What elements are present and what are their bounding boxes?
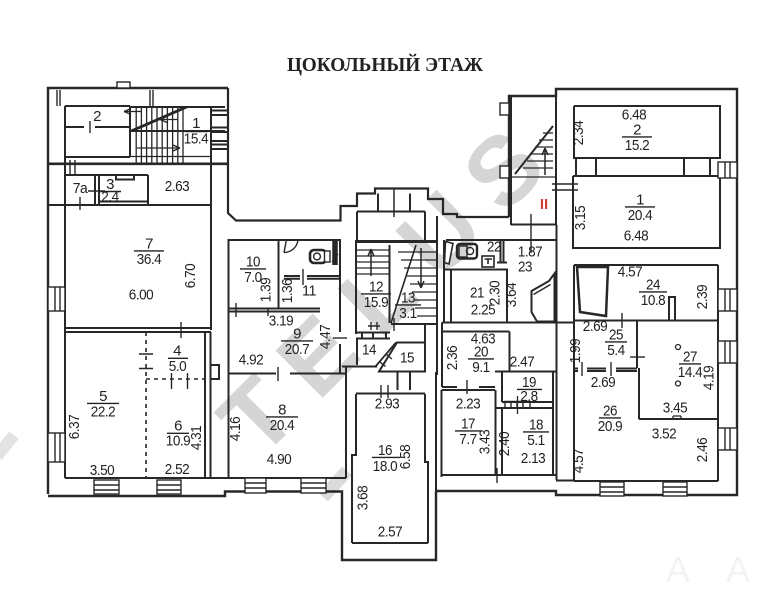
svg-text:4.57: 4.57 — [571, 448, 587, 473]
svg-text:20.9: 20.9 — [598, 418, 623, 435]
svg-text:6.37: 6.37 — [67, 414, 83, 439]
svg-text:14: 14 — [362, 342, 376, 359]
svg-text:2.40: 2.40 — [497, 431, 513, 456]
svg-text:16: 16 — [378, 442, 392, 459]
svg-text:А: А — [666, 549, 690, 590]
svg-text:21: 21 — [470, 285, 484, 302]
svg-text:6.70: 6.70 — [183, 263, 199, 288]
svg-text:22.2: 22.2 — [91, 403, 116, 420]
svg-text:2.34: 2.34 — [571, 120, 587, 145]
svg-text:4.16: 4.16 — [228, 416, 244, 441]
svg-text:2.93: 2.93 — [375, 397, 400, 413]
svg-text:23: 23 — [518, 259, 532, 276]
svg-text:2.69: 2.69 — [583, 319, 608, 335]
svg-text:4.90: 4.90 — [267, 452, 292, 468]
svg-text:1.39: 1.39 — [259, 277, 275, 302]
svg-text:ЦОКОЛЬНЫЙ ЭТАЖ: ЦОКОЛЬНЫЙ ЭТАЖ — [287, 53, 484, 76]
svg-text:2: 2 — [93, 108, 101, 125]
svg-text:3.1: 3.1 — [399, 305, 417, 322]
svg-text:А: А — [726, 549, 750, 590]
svg-text:6.00: 6.00 — [129, 288, 154, 304]
svg-text:4.31: 4.31 — [189, 425, 205, 450]
svg-text:11: 11 — [302, 283, 316, 300]
svg-text:2.46: 2.46 — [695, 437, 711, 462]
svg-text:36.4: 36.4 — [137, 251, 162, 268]
svg-text:2.39: 2.39 — [695, 284, 711, 309]
svg-text:2.13: 2.13 — [521, 451, 546, 467]
svg-text:2.52: 2.52 — [165, 462, 190, 478]
svg-text:15: 15 — [400, 350, 414, 367]
svg-text:22: 22 — [487, 239, 501, 256]
svg-text:3.43: 3.43 — [478, 429, 494, 454]
svg-text:7а: 7а — [73, 180, 89, 197]
svg-text:3.19: 3.19 — [269, 314, 294, 330]
svg-text:3.64: 3.64 — [504, 282, 520, 307]
svg-text:5.4: 5.4 — [607, 342, 625, 359]
svg-text:18.0: 18.0 — [373, 458, 398, 475]
svg-text:6.48: 6.48 — [624, 229, 649, 245]
svg-text:1.36: 1.36 — [280, 278, 296, 303]
svg-text:4.57: 4.57 — [618, 265, 643, 281]
svg-text:4.47: 4.47 — [318, 324, 334, 349]
svg-text:3.50: 3.50 — [90, 463, 115, 479]
svg-text:15.2: 15.2 — [625, 137, 650, 154]
svg-text:2.25: 2.25 — [471, 303, 496, 319]
svg-text:1.99: 1.99 — [568, 338, 584, 363]
svg-text:2.23: 2.23 — [456, 397, 481, 413]
svg-text:20.7: 20.7 — [285, 341, 310, 358]
svg-text:20.4: 20.4 — [270, 417, 295, 434]
svg-text:4.92: 4.92 — [239, 353, 264, 369]
svg-text:2.57: 2.57 — [378, 525, 403, 541]
svg-text:9.1: 9.1 — [472, 359, 490, 376]
svg-text:6.58: 6.58 — [398, 444, 414, 469]
svg-text:II: II — [540, 196, 548, 213]
svg-text:2.4: 2.4 — [101, 189, 119, 206]
svg-text:5.0: 5.0 — [169, 358, 187, 375]
svg-text:2.69: 2.69 — [591, 375, 616, 391]
svg-text:14.4: 14.4 — [678, 364, 703, 381]
svg-text:10.9: 10.9 — [166, 432, 191, 449]
svg-text:2.36: 2.36 — [445, 345, 461, 370]
svg-text:7.7: 7.7 — [459, 431, 477, 448]
svg-text:3.15: 3.15 — [573, 205, 589, 230]
svg-text:3.68: 3.68 — [356, 485, 372, 510]
svg-text:4.63: 4.63 — [471, 332, 496, 348]
svg-text:3.52: 3.52 — [652, 427, 677, 443]
svg-text:4.19: 4.19 — [702, 365, 718, 390]
svg-text:2.47: 2.47 — [510, 355, 535, 371]
svg-text:15.9: 15.9 — [364, 294, 389, 311]
svg-text:2.8: 2.8 — [520, 388, 538, 405]
svg-text:2.63: 2.63 — [165, 179, 190, 195]
svg-text:20.4: 20.4 — [628, 207, 653, 224]
svg-text:4: 4 — [173, 343, 181, 360]
svg-text:10.8: 10.8 — [641, 292, 666, 309]
svg-text:15.4: 15.4 — [184, 130, 209, 147]
svg-text:3.45: 3.45 — [663, 401, 688, 417]
svg-text:5.1: 5.1 — [527, 432, 545, 449]
